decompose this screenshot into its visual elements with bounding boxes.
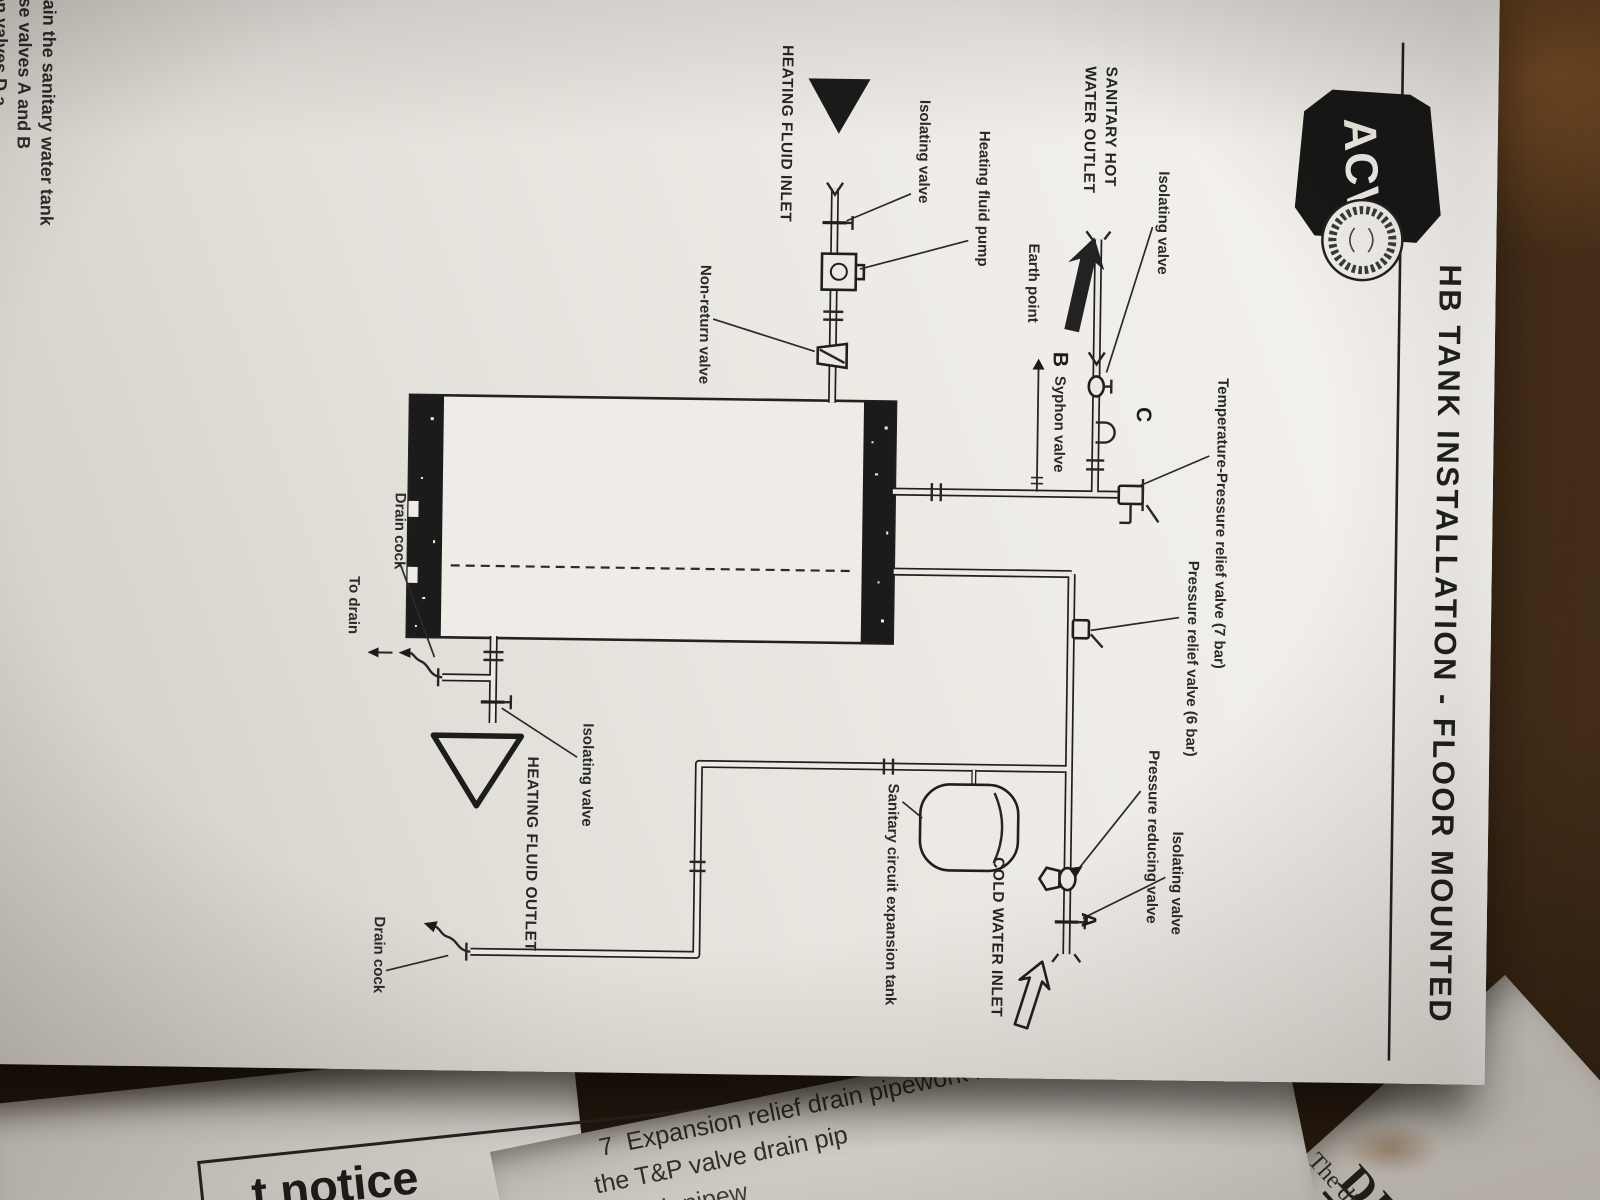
cold-inlet-flow-arrow [1006,957,1056,1031]
label-drain-cock: Drain cock [370,916,388,994]
label-expansion-tank: Sanitary circuit expansion tank [882,783,902,1006]
tank-foot-notch [407,567,417,583]
coffee-stain [1340,1122,1440,1174]
label-to-drain: To drain [345,576,363,634]
label-sanitary-hot-1: SANITARY HOT [1101,66,1120,187]
page-title: HB TANK INSTALLATION - FLOOR MOUNTED [1422,264,1468,1024]
label-tp-relief-valve: Temperature-Pressure relief valve (7 bar… [1210,378,1231,669]
heating-fluid-pump-symbol [822,254,864,291]
non-return-valve-symbol [818,344,847,368]
label-heating-fluid-inlet: HEATING FLUID INLET [777,45,796,222]
installation-diagram: HB TANK INSTALLATION - FLOOR MOUNTED ACV [0,0,1500,1085]
acv-logo: ACV [1294,89,1443,281]
heating-outlet-triangle [432,735,521,806]
notice-text: t notice [249,1153,420,1200]
photo-scene: DISC The dis person t notice 7 Expansion… [0,0,1600,1200]
pipe-break-mark [827,183,843,195]
pressure-reducing-valve [1039,868,1075,891]
label-non-return-valve: Non-return valve [695,265,714,384]
label-drain-cock: Drain cock [391,493,409,571]
footer-instruction-line: drain the sanitary water tank [36,0,59,227]
pressure-relief-valve-6bar [1073,620,1103,647]
label-earth-point: Earth point [1024,243,1042,322]
tag-b: B [1049,352,1072,367]
tank-foot-notch [408,501,418,517]
label-sanitary-hot-2: WATER OUTLET [1080,66,1099,193]
earth-point-line [1031,359,1045,492]
label-isolating-valve: Isolating valve [578,723,596,827]
footer-instruction-line: lose valves A and B [13,0,35,149]
manual-page: HB TANK INSTALLATION - FLOOR MOUNTED ACV [0,0,1500,1085]
label-isolating-valve: Isolating valve [1154,171,1172,275]
footer-instruction-line: pen valves D a [0,0,12,107]
expansion-vessel [920,769,1019,871]
tag-c: C [1132,407,1155,422]
label-pressure-reducing: Pressure reducing valve [1143,750,1162,924]
label-cold-water-inlet: COLD WATER INLET [987,857,1006,1017]
isolating-valve-hot [1089,376,1112,396]
heating-inlet-triangle [808,78,871,134]
label-isolating-valve: Isolating valve [1168,831,1186,935]
drain-cock-relief [423,921,471,961]
label-isolating-valve: Isolating valve [915,100,933,204]
drain-cock-tank [367,647,443,686]
label-syphon-valve: Syphon valve [1050,376,1068,473]
hot-water-tank [407,395,896,644]
label-pressure-relief: Pressure relief valve (6 bar) [1182,561,1202,757]
pipe-open-end [1052,954,1080,962]
tag-a: A [1077,912,1100,927]
label-heating-fluid-outlet: HEATING FLUID OUTLET [521,756,541,951]
hot-outlet-flow-arrow [1054,233,1111,335]
pipe-open-end [1086,231,1110,239]
label-heating-fluid-pump: Heating fluid pump [974,131,993,267]
